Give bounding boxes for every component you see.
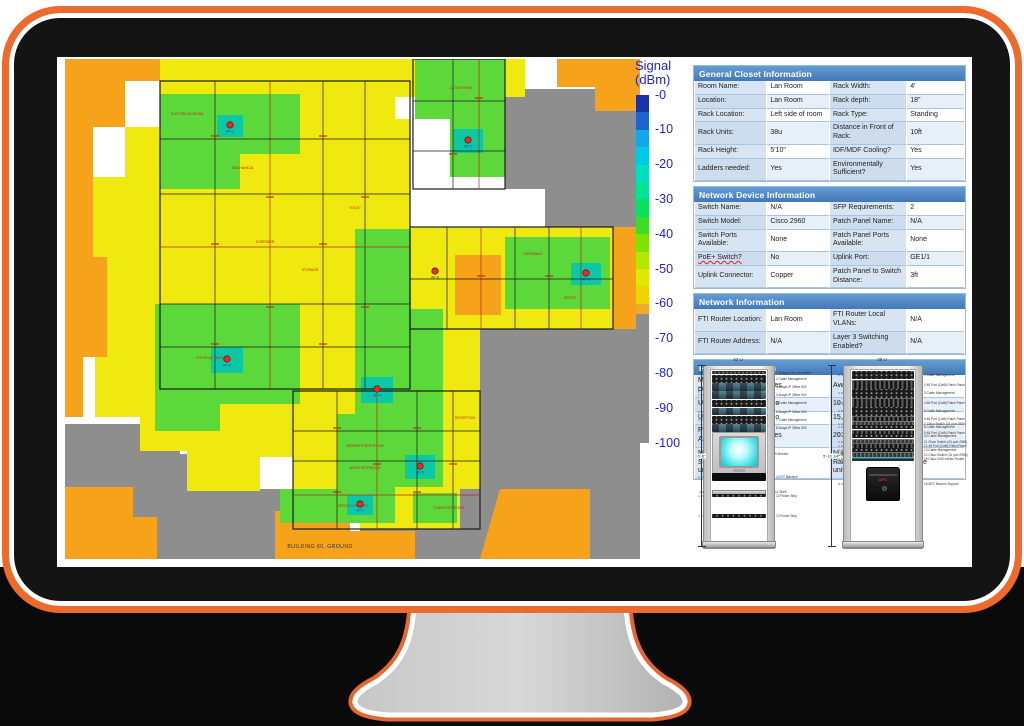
field-label: Switch Ports Available:	[695, 230, 766, 253]
rack-unit-label: 12 Power Strip	[776, 494, 797, 498]
field-label: Layer 3 Switching Enabled?	[830, 332, 906, 355]
legend-color-segment	[636, 234, 649, 251]
ap-marker-icon	[465, 137, 471, 143]
field-label: Switch Name:	[695, 202, 766, 216]
rack-unit-label: 1 Netgear 24 port switch	[776, 371, 811, 375]
legend-color-segment	[636, 269, 649, 286]
info-table: FTI Router Location:Lan RoomFTI Router L…	[694, 309, 965, 354]
rack-unit-avaya: 2 U3 Avaya IP Office 500	[712, 383, 766, 391]
field-value: Yes	[767, 159, 829, 182]
rack-unit-cable: 1 U13 Cable Management	[852, 448, 914, 452]
legend-tick-label: -0	[655, 89, 666, 102]
rack-unit-label: 13 Cable Management	[924, 448, 956, 452]
rack-unit-gap	[852, 462, 914, 466]
legend-tick-label: -90	[655, 402, 673, 415]
rack-unit-avaya: 2 U8 Avaya IP Office 500	[712, 424, 766, 432]
rack-unit-avaya: 2 U4 Avaya IP Office 500	[712, 391, 766, 399]
legend-title: Signal (dBm)	[635, 59, 691, 87]
monitor-mockup-page: ELECTRICAL ROOMMECHANICALSTORAGECORRIDOR…	[0, 0, 1024, 726]
room-label: ELECTRICAL ROOM	[171, 112, 203, 116]
field-value: N/A	[907, 216, 964, 230]
rack-unit-size: 1 U	[838, 440, 843, 444]
field-label: Rack Height:	[695, 145, 766, 159]
rack-rail: 1 U1 Netgear 24 port switch2 U2 Cable Ma…	[710, 369, 768, 543]
ap-label: AP-7	[356, 509, 364, 513]
rack-unit-size: 1 U	[838, 457, 843, 461]
ap-label: AP-6	[582, 278, 590, 282]
field-value: No	[767, 252, 829, 266]
legend-color-segment	[636, 95, 649, 112]
field-label: Uplink Port:	[830, 252, 906, 266]
legend-title-line1: Signal	[635, 59, 691, 73]
info-table: Switch Name:N/ASFP Requirements:2Switch …	[694, 202, 965, 288]
rack-unit-label: 3 Avaya IP Office 500	[776, 385, 806, 389]
rack-unit-router: 1 U15 Cisco 4300 series Router	[852, 457, 914, 461]
ups-power-button	[882, 486, 887, 491]
legend-tick-label: -70	[655, 332, 673, 345]
rack-title: 42 U	[703, 357, 773, 362]
rack-unit-size: 2 U	[838, 401, 843, 405]
rack-elevation-diagrams: 42 U1 U1 Netgear 24 port switch2 U2 Cabl…	[697, 357, 967, 562]
crt-screen	[719, 436, 759, 468]
table-row: Uplink Connector:CopperPatch Panel to Sw…	[695, 266, 964, 289]
rack-unit-cable: 1 U10 Cable Management	[852, 434, 914, 438]
rack-unit-label: 7 Cable Management	[776, 418, 806, 422]
rack-unit-cable: 2 U1 Cable Management	[852, 371, 914, 379]
field-label: Uplink Connector:	[695, 266, 766, 289]
field-label: Switch Model:	[695, 216, 766, 230]
table-row: FTI Router Address:N/ALayer 3 Switching …	[695, 332, 964, 355]
misspelled-term: PoE+ Switch?	[698, 254, 742, 261]
field-value: GE1/1	[907, 252, 964, 266]
table-row: Rack Height:5'10"IDF/MDF Cooling?Yes	[695, 145, 964, 159]
field-label: Rack depth:	[830, 95, 906, 109]
info-section: Network InformationFTI Router Location:L…	[693, 293, 966, 355]
rack-unit-label: 8 Avaya IP Office 500	[776, 426, 806, 430]
legend-color-segment	[636, 252, 649, 269]
rack-unit-label: 4 Avaya IP Office 500	[776, 393, 806, 397]
rack-unit-size: 1 U	[838, 448, 843, 452]
field-label: Patch Panel Name:	[830, 216, 906, 230]
legend-tick-label: -30	[655, 193, 673, 206]
rack-42u: 42 U1 U1 Netgear 24 port switch2 U2 Cabl…	[703, 357, 773, 557]
ap-label: AP-4	[373, 394, 381, 398]
info-section: General Closet InformationRoom Name:Lan …	[693, 65, 966, 182]
rack-unit-power: 1 U12 Power Strip	[712, 494, 766, 497]
rack-unit-label: 16 APC Mission Support	[924, 482, 959, 486]
rack-frame: 2 U1 Cable Management2 U2 48 Port (Cat6)…	[843, 365, 923, 549]
ap-marker-icon	[227, 122, 233, 128]
table-row: Switch Model:Cisco 2960Patch Panel Name:…	[695, 216, 964, 230]
rack-unit-label: 1 Cable Management	[924, 373, 954, 377]
field-value: None	[907, 230, 964, 253]
info-table: Room Name:Lan RoomRack Width:4'Location:…	[694, 81, 965, 181]
field-label: IDF/MDF Cooling?	[830, 145, 906, 159]
dimension-line: 6'-6"	[701, 365, 702, 547]
table-row: Switch Ports Available:NonePatch Panel P…	[695, 230, 964, 253]
table-row: PoE+ Switch?NoUplink Port:GE1/1	[695, 252, 964, 266]
rack-unit-size: 2 U	[838, 383, 843, 387]
rack-base	[702, 541, 776, 548]
rack-unit-cable: 1 U8 Cable Management	[852, 425, 914, 429]
field-value: Yes	[907, 145, 964, 159]
field-value: N/A	[907, 332, 964, 355]
ap-marker-icon	[432, 268, 438, 274]
rack-unit-pc: 2 U10 PC Machine	[712, 473, 766, 481]
field-label: Rack Width:	[830, 81, 906, 95]
legend-tick-label: -20	[655, 158, 673, 171]
rack-unit-label: 4 48 Port (Cat6) Patch Panel	[924, 401, 965, 405]
legend-color-segment	[636, 130, 649, 147]
rack-unit-label: 6 Avaya IP Office 500	[776, 410, 806, 414]
rack-base	[842, 541, 924, 548]
legend-title-line2: (dBm)	[635, 73, 691, 87]
rack-unit-power: 1 U13 Power Strip	[712, 514, 766, 517]
legend-tick-label: -60	[655, 297, 673, 310]
apc-logo: APC	[867, 477, 900, 482]
rack-unit-size: 1 U	[838, 434, 843, 438]
wifi-heatmap-floorplan: ELECTRICAL ROOMMECHANICALSTORAGECORRIDOR…	[65, 59, 640, 564]
field-label: Distance in Front of Rack:	[830, 122, 906, 145]
info-section: Network Device InformationSwitch Name:N/…	[693, 186, 966, 289]
rack-unit-monitor: 10 U9 Monitor	[712, 432, 766, 474]
legend-tick-label: -80	[655, 367, 673, 380]
rack-frame: 1 U1 Netgear 24 port switch2 U2 Cable Ma…	[703, 365, 775, 549]
rack-unit-label: 3 Cable Management	[924, 391, 954, 395]
field-value: N/A	[767, 202, 829, 216]
field-label: Rack Location:	[695, 109, 766, 123]
rack-unit-size: 2 U	[838, 409, 843, 413]
room-label: SPEECH THERAPY	[338, 504, 370, 508]
signal-legend: Signal (dBm) -0-10-20-30-40-50-60-70-80-…	[635, 59, 691, 459]
field-label: PoE+ Switch?	[695, 252, 766, 266]
field-value: 2	[907, 202, 964, 216]
dimension-label: 6'-6"	[697, 454, 707, 459]
rack-unit-panel: 2 U2 48 Port (Cat6) Patch Panel	[852, 380, 914, 389]
legend-tick-label: -100	[655, 437, 680, 450]
field-label: FTI Router Location:	[695, 309, 766, 332]
legend-color-segment	[636, 165, 649, 182]
screen-content: ELECTRICAL ROOMMECHANICALSTORAGECORRIDOR…	[57, 57, 972, 567]
rack-unit-label: 8 Cable Management	[924, 425, 954, 429]
section-header: Network Device Information	[694, 187, 965, 202]
ap-marker-icon	[583, 270, 589, 276]
room-label: TOILET	[349, 206, 361, 210]
dimension-line: 5'-10 1/4"	[831, 365, 832, 547]
rack-rail: 2 U1 Cable Management2 U2 48 Port (Cat6)…	[850, 369, 916, 543]
field-label: Ladders needed:	[695, 159, 766, 182]
crt-base	[733, 469, 746, 472]
rack-unit-label: 13 Power Strip	[776, 514, 797, 518]
room-label: CORRIDOR	[256, 240, 275, 244]
rack-unit-cable: 2 U2 Cable Management	[712, 375, 766, 383]
ups-band	[869, 474, 897, 476]
field-value: N/A	[907, 309, 964, 332]
room-label: COMPUTER ROOM	[434, 506, 465, 510]
legend-tick-label: -50	[655, 263, 673, 276]
legend-color-segment	[636, 199, 649, 216]
monitor-bezel: ELECTRICAL ROOMMECHANICALSTORAGECORRIDOR…	[14, 18, 1010, 601]
legend-color-segment	[636, 217, 649, 234]
field-value: Lan Room	[767, 309, 829, 332]
rack-unit-size: 1 U	[838, 417, 843, 421]
field-value: 4'	[907, 81, 964, 95]
rack-unit-label: 2 48 Port (Cat6) Patch Panel	[924, 383, 965, 387]
ap-marker-icon	[417, 463, 423, 469]
field-value: 5'10"	[767, 145, 829, 159]
field-value: 18"	[907, 95, 964, 109]
field-label: Room Name:	[695, 81, 766, 95]
ap-label: AP-2	[464, 145, 472, 149]
ups-tower: APC	[866, 467, 901, 501]
field-value: Yes	[907, 159, 964, 182]
field-value: Left side of room	[767, 109, 829, 123]
rack-unit-size: 8 U	[838, 482, 843, 486]
rack-unit-label: 15 Cisco 4300 series Router	[924, 457, 964, 461]
rack-title: 38 U	[843, 357, 921, 362]
rack-unit-label: 9 Monitor	[775, 452, 788, 456]
room-label: ACTIVITY RM	[450, 86, 472, 90]
field-label: Location:	[695, 95, 766, 109]
ap-label: AP-3	[223, 364, 231, 368]
rack-unit-size: 2 U	[838, 391, 843, 395]
field-label: Rack Units:	[695, 122, 766, 145]
monitor-white-trim: ELECTRICAL ROOMMECHANICALSTORAGECORRIDOR…	[9, 13, 1015, 606]
rack-unit-gap	[712, 498, 766, 514]
rack-unit-cable: 2 U7 Cable Management	[712, 416, 766, 424]
table-row: Location:Lan RoomRack depth:18"	[695, 95, 964, 109]
ap-label: AP-1	[226, 130, 234, 134]
rack-unit-label: 5 Cable Management	[924, 409, 954, 413]
room-label: MECHANICAL	[232, 166, 254, 170]
table-row: FTI Router Location:Lan RoomFTI Router L…	[695, 309, 964, 332]
field-value: N/A	[767, 332, 829, 355]
table-row: Rack Units:38uDistance in Front of Rack:…	[695, 122, 964, 145]
field-value: Lan Room	[767, 95, 829, 109]
table-row: Room Name:Lan RoomRack Width:4'	[695, 81, 964, 95]
room-label: OFFICE	[564, 296, 577, 300]
legend-color-segment	[636, 286, 649, 303]
ap-label: AP-8	[431, 276, 439, 280]
floorplan-caption: BUILDING 60, GROUND	[287, 544, 352, 550]
rack-unit-cable: 2 U5 Cable Management	[712, 400, 766, 408]
rack-unit-gap	[712, 482, 766, 490]
field-value: None	[767, 230, 829, 253]
field-label: SFP Requirements:	[830, 202, 906, 216]
rack-unit-label: 2 Cable Management	[776, 377, 806, 381]
rack-unit-cable: 2 U5 Cable Management	[852, 407, 914, 415]
heat-zone-orange	[455, 255, 501, 315]
room-label: VESTIBULE	[524, 252, 543, 256]
monitor-frame: ELECTRICAL ROOMMECHANICALSTORAGECORRIDOR…	[2, 6, 1022, 613]
field-value: 3ft	[907, 266, 964, 289]
ap-marker-icon	[224, 356, 230, 362]
room-label: STORAGE	[302, 268, 319, 272]
field-value: 10ft	[907, 122, 964, 145]
rack-unit-size: 2 U	[838, 373, 843, 377]
legend-tick-label: -10	[655, 123, 673, 136]
field-label: Patch Panel Ports Available:	[830, 230, 906, 253]
legend-color-segment	[636, 182, 649, 199]
table-row: Ladders needed:YesEnvironmentally Suffic…	[695, 159, 964, 182]
table-row: Switch Name:N/ASFP Requirements:2	[695, 202, 964, 216]
field-label: Environmentally Sufficient?	[830, 159, 906, 182]
rack-unit-cable: 2 U3 Cable Management	[852, 389, 914, 397]
ap-marker-icon	[357, 501, 363, 507]
rack-unit-size: 1 U	[838, 425, 843, 429]
field-value: Cisco 2960	[767, 216, 829, 230]
field-label: FTI Router Local VLANs:	[830, 309, 906, 332]
legend-color-segment	[636, 147, 649, 164]
legend-color-segment	[636, 112, 649, 129]
rack-unit-label: 11 Cisco Switch (24 port 2960)	[924, 440, 967, 444]
legend-tick-label: -40	[655, 228, 673, 241]
rack-unit-label: 10 Cable Management	[924, 434, 956, 438]
field-value: Standing	[907, 109, 964, 123]
rack-unit-switch: 1 U1 Netgear 24 port switch	[712, 371, 766, 374]
ap-label: AP-5	[416, 471, 424, 475]
rack-unit-panel: 2 U4 48 Port (Cat6) Patch Panel	[852, 398, 914, 407]
field-label: Patch Panel to Switch Distance:	[830, 266, 906, 289]
field-value: Lan Room	[767, 81, 829, 95]
field-value: Copper	[767, 266, 829, 289]
ap-marker-icon	[374, 386, 380, 392]
field-label: FTI Router Address:	[695, 332, 766, 355]
section-header: Network Information	[694, 294, 965, 309]
field-label: Rack Type:	[830, 109, 906, 123]
room-label: RECEPTION	[455, 416, 475, 420]
section-header: General Closet Information	[694, 66, 965, 81]
legend-colorbar	[636, 95, 649, 443]
table-row: Rack Location:Left side of roomRack Type…	[695, 109, 964, 123]
room-label: WOMEN'S RESTROOM	[347, 444, 384, 448]
legend-color-segment	[636, 304, 649, 314]
rack-unit-label: 10 PC Machine	[776, 475, 798, 479]
rack-unit-label: 6 48 Port (Cat6) Patch Panel	[924, 417, 965, 421]
rack-38u: 38 U2 U1 Cable Management2 U2 48 Port (C…	[843, 357, 921, 557]
room-label: MEN'S RESTROOM	[350, 466, 381, 470]
rack-unit-avaya: 2 U6 Avaya IP Office 500	[712, 408, 766, 416]
rack-unit-ups: 8 U16 APC Mission SupportAPC	[852, 466, 914, 502]
legend-color-segment	[636, 314, 649, 443]
field-value: 38u	[767, 122, 829, 145]
rack-unit-label: 5 Cable Management	[776, 401, 806, 405]
